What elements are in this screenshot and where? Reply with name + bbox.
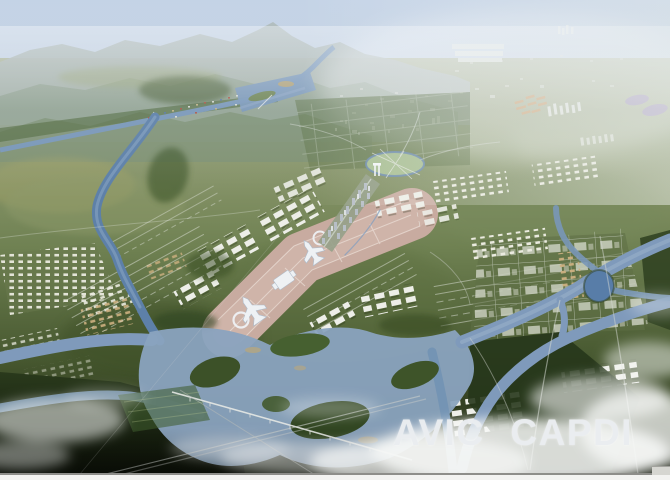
watermark-text: AVIC CAPDI — [393, 412, 633, 454]
atmosphere-haze — [0, 0, 670, 205]
bottom-right-notch — [652, 466, 670, 475]
aerial-rendering-canvas: AVIC CAPDI — [0, 0, 670, 480]
rendering-artwork — [0, 0, 670, 480]
bottom-border-strip — [0, 475, 670, 480]
